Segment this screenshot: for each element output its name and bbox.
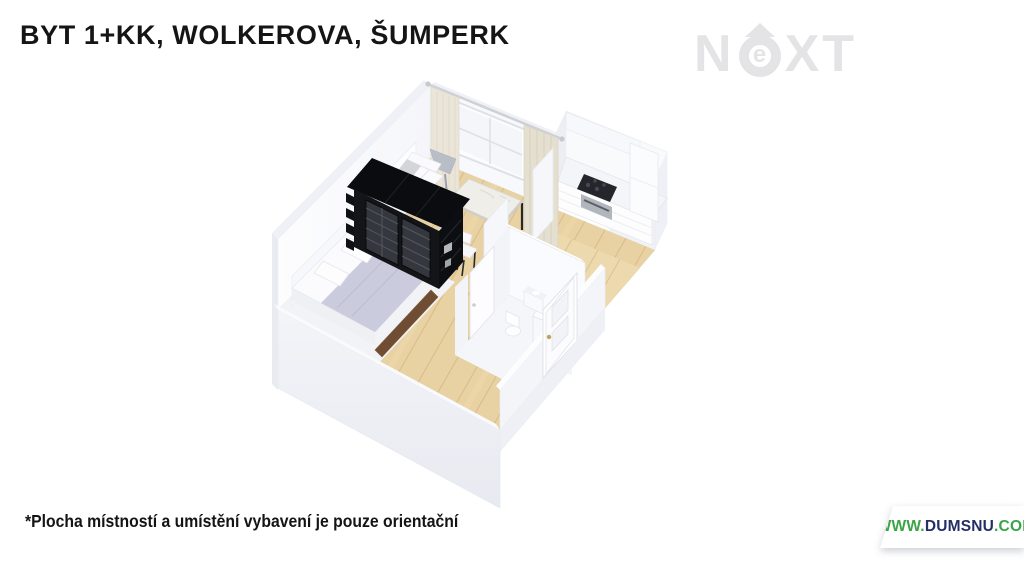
- bathroom-wall: [455, 274, 468, 355]
- presentation-slide: { "header": { "title": "BYT 1+KK, WOLKER…: [0, 0, 1024, 575]
- disclaimer-text: *Plocha místností a umístění vybavení je…: [25, 511, 458, 532]
- website-www: WWW.: [877, 518, 925, 536]
- page-title: BYT 1+KK, WOLKEROVA, ŠUMPERK: [20, 20, 510, 51]
- website-banner: WWW.DUMSNU.COM: [876, 506, 1024, 548]
- toilet-bowl: [506, 326, 521, 336]
- next-logo-letter-n: N: [694, 28, 735, 80]
- door-handle: [547, 335, 551, 339]
- website-domain: DUMSNU: [925, 518, 994, 536]
- floorplan-render: [0, 0, 1024, 575]
- next-logo-roof-icon: [745, 23, 775, 37]
- next-logo-letter-e: e: [753, 43, 766, 67]
- next-logo-e-circle: e: [739, 35, 781, 77]
- next-logo-letters-xt: XT: [785, 28, 857, 80]
- website-tld: .COM: [994, 518, 1024, 536]
- website-ribbon: WWW.DUMSNU.COM: [876, 506, 1024, 548]
- next-logo: N e XT: [694, 24, 857, 84]
